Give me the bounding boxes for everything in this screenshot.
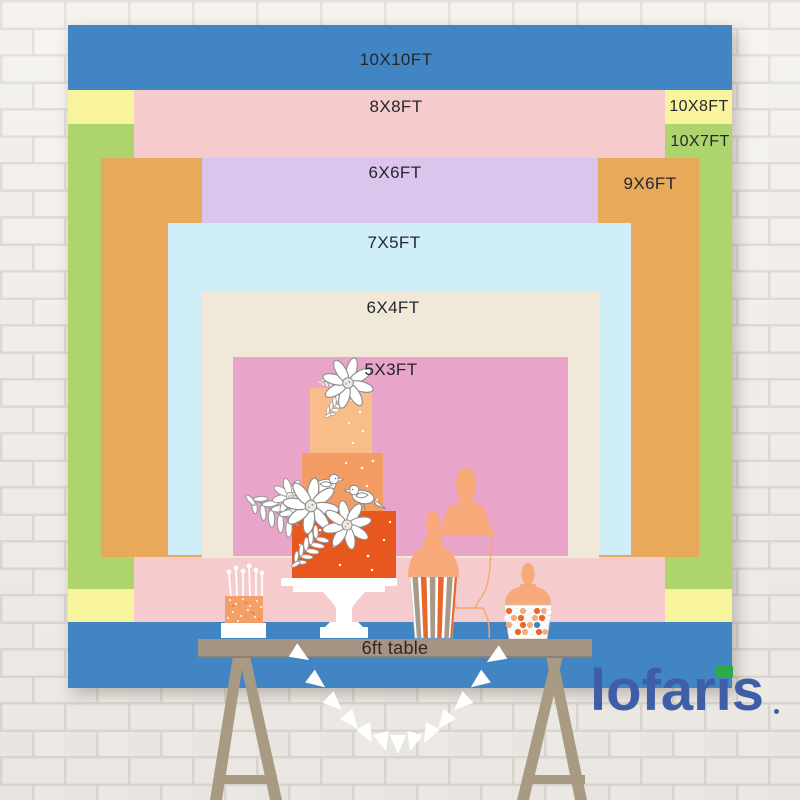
cake-stand-icon (281, 578, 397, 638)
size-label-6x4: 6X4FT (366, 298, 419, 318)
cake-pops-icon (221, 564, 266, 638)
brand-logo: lofaris (590, 662, 800, 724)
size-label-9x6: 9X6FT (623, 174, 676, 194)
size-label-7x5: 7X5FT (367, 233, 420, 253)
candy-jar-icon (504, 563, 552, 639)
size-label-8x8: 8X8FT (369, 97, 422, 117)
pennant-banner-icon (180, 630, 620, 800)
size-label-10x8: 10X8FT (669, 98, 728, 116)
size-label-10x7: 10X7FT (670, 133, 729, 151)
size-label-6x6: 6X6FT (368, 163, 421, 183)
dessert-table-illustration (190, 350, 610, 660)
size-label-10x10: 10X10FT (360, 50, 433, 70)
logo-registered-dot (774, 709, 779, 714)
backdrop-product-image: 6ft table 10X10FT 8X8FT 10X8FT 10X7FT 6X… (0, 0, 800, 800)
size-label-5x3: 5X3FT (364, 360, 417, 380)
logo-i-accent-block (716, 666, 733, 677)
brand-logo-text: lofaris (590, 658, 764, 723)
